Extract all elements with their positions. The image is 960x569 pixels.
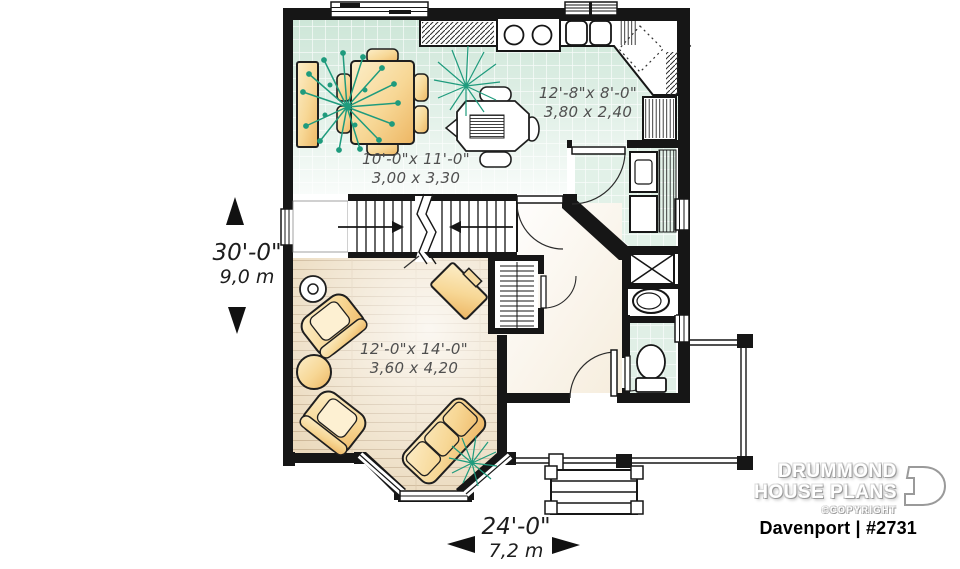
powder-window-icon — [675, 315, 689, 342]
brand-line2: HOUSE PLANS — [747, 483, 897, 504]
copyright-label: ©COPYRIGHT — [747, 505, 897, 515]
living-size-label: 12'-0"x 14'-0" 3,60 x 4,20 — [359, 340, 469, 378]
plan-title: Davenport | #2731 — [737, 518, 917, 539]
fridge-icon — [643, 97, 676, 140]
dining-size-imperial: 10'-0"x 11'-0" — [361, 150, 471, 169]
washer-icon — [630, 152, 657, 192]
overall-width-dimension: 24'-0" 7,2 m — [466, 514, 566, 562]
floorplan-screenshot: 12'-8"x 8'-0" 3,80 x 2,40 10'-0"x 11'-0"… — [0, 0, 960, 569]
brand-line1: DRUMMOND — [747, 462, 897, 483]
dining-size-label: 10'-0"x 11'-0" 3,00 x 3,30 — [361, 150, 471, 188]
side-table-lamp-icon — [300, 276, 326, 302]
arrow-down-icon — [228, 307, 246, 334]
kitchen-size-metric: 3,80 x 2,40 — [533, 103, 643, 122]
drummond-d-logo-icon — [901, 464, 949, 510]
water-heater-icon — [628, 289, 676, 315]
overall-depth-dimension: 30'-0" 9,0 m — [197, 240, 297, 288]
laundry-room-fixtures — [628, 150, 676, 315]
living-size-imperial: 12'-0"x 14'-0" — [359, 340, 469, 359]
dryer-icon — [630, 196, 657, 232]
dining-window-icon — [331, 2, 428, 17]
arrow-up-icon — [226, 197, 244, 225]
width-metric: 7,2 m — [466, 540, 566, 562]
kitchen-size-imperial: 12'-8"x 8'-0" — [533, 84, 643, 103]
stove-icon — [497, 18, 560, 51]
toilet-icon — [636, 345, 666, 392]
kitchen-size-label: 12'-8"x 8'-0" 3,80 x 2,40 — [533, 84, 643, 122]
shelving-icon — [659, 150, 676, 232]
ottoman-icon — [297, 355, 331, 389]
living-size-metric: 3,60 x 4,20 — [359, 359, 469, 378]
chimney-chase-icon — [630, 254, 674, 284]
porch-steps-icon — [545, 466, 643, 514]
depth-imperial: 30'-0" — [197, 240, 297, 266]
dining-size-metric: 3,00 x 3,30 — [361, 169, 471, 188]
coat-closet — [495, 261, 538, 328]
powder-room-fixtures — [636, 345, 666, 392]
depth-metric: 9,0 m — [197, 266, 297, 288]
kitchen-window-icon — [565, 2, 617, 15]
brand-wordmark: DRUMMOND HOUSE PLANS — [747, 462, 897, 503]
laundry-window-icon — [675, 199, 689, 230]
width-imperial: 24'-0" — [466, 514, 566, 540]
